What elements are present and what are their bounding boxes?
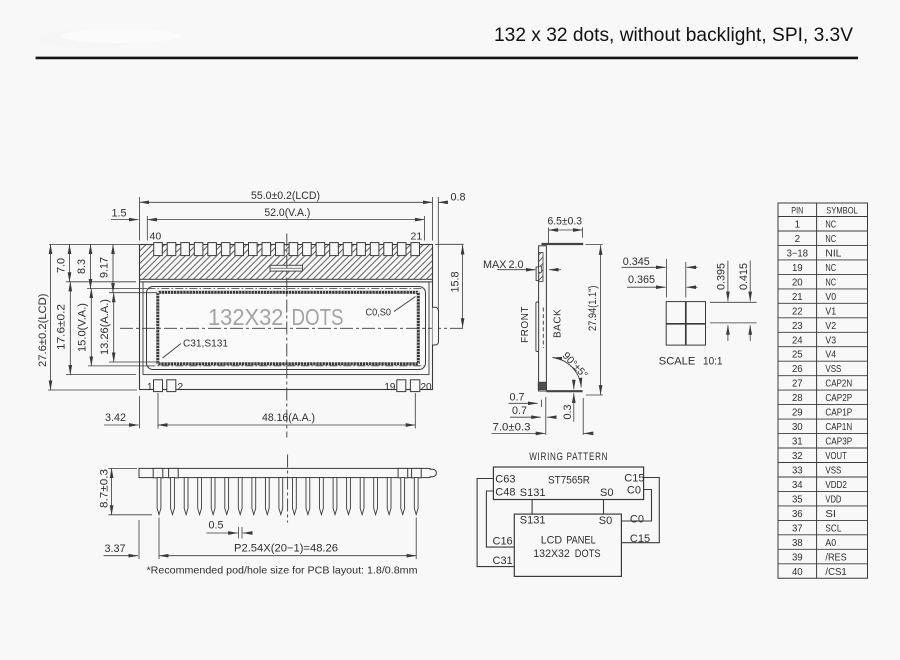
svg-text:1: 1 bbox=[147, 382, 153, 393]
svg-text:39: 39 bbox=[792, 552, 803, 563]
svg-text:8.3: 8.3 bbox=[76, 259, 88, 274]
svg-text:8.7±0.3: 8.7±0.3 bbox=[99, 469, 111, 508]
svg-text:19: 19 bbox=[384, 382, 396, 393]
svg-text:38: 38 bbox=[792, 538, 803, 549]
svg-text:C16: C16 bbox=[493, 536, 513, 548]
svg-text:17.6±0.2: 17.6±0.2 bbox=[56, 304, 68, 350]
svg-text:27: 27 bbox=[792, 379, 803, 390]
svg-text:3.42: 3.42 bbox=[105, 412, 126, 424]
svg-text:/CS1: /CS1 bbox=[825, 567, 846, 578]
svg-text:CAP2P: CAP2P bbox=[825, 393, 852, 404]
svg-text:0.395: 0.395 bbox=[716, 263, 728, 290]
svg-text:V4: V4 bbox=[825, 350, 836, 361]
svg-text:25: 25 bbox=[792, 350, 803, 361]
svg-text:132 x 32 dots, without backlig: 132 x 32 dots, without backlight, SPI, 3… bbox=[494, 24, 853, 46]
svg-text:2: 2 bbox=[178, 382, 184, 393]
svg-text:LCD: LCD bbox=[541, 535, 563, 547]
svg-text:SYMBOL: SYMBOL bbox=[826, 206, 858, 217]
svg-text:*Recommended pod/hole size for: *Recommended pod/hole size for PCB layou… bbox=[147, 566, 418, 577]
svg-text:30: 30 bbox=[792, 422, 803, 433]
svg-text:24: 24 bbox=[792, 335, 803, 346]
svg-text:55.0±0.2(LCD): 55.0±0.2(LCD) bbox=[251, 190, 320, 202]
svg-text:0.3: 0.3 bbox=[562, 404, 574, 419]
svg-text:27.94(1.1"): 27.94(1.1") bbox=[587, 286, 599, 332]
svg-text:40: 40 bbox=[792, 567, 803, 578]
svg-text:3−18: 3−18 bbox=[787, 248, 809, 259]
svg-text:15.8: 15.8 bbox=[450, 271, 462, 292]
svg-text:S131: S131 bbox=[520, 487, 546, 499]
svg-text:PANEL: PANEL bbox=[566, 535, 596, 547]
svg-text:26: 26 bbox=[792, 364, 803, 375]
svg-text:DOTS: DOTS bbox=[292, 304, 344, 330]
svg-text:CAP1P: CAP1P bbox=[825, 408, 852, 419]
svg-text:A0: A0 bbox=[825, 538, 836, 549]
svg-text:C63: C63 bbox=[495, 474, 515, 486]
svg-text:13.26(A.A.): 13.26(A.A.) bbox=[99, 299, 111, 355]
svg-text:10:1: 10:1 bbox=[703, 356, 723, 368]
svg-text:6.5±0.3: 6.5±0.3 bbox=[548, 216, 583, 228]
svg-text:31: 31 bbox=[792, 437, 803, 448]
svg-text:132X32: 132X32 bbox=[533, 548, 570, 560]
svg-text:1: 1 bbox=[795, 220, 800, 231]
svg-text:C15: C15 bbox=[624, 472, 644, 484]
svg-text:0.8: 0.8 bbox=[451, 192, 466, 204]
svg-text:V3: V3 bbox=[825, 335, 836, 346]
svg-text:21: 21 bbox=[792, 292, 803, 303]
svg-text:33: 33 bbox=[792, 466, 803, 477]
svg-text:S0: S0 bbox=[600, 487, 613, 499]
svg-text:S131: S131 bbox=[520, 515, 546, 527]
svg-text:CAP2N: CAP2N bbox=[825, 379, 852, 390]
svg-text:NIL: NIL bbox=[825, 248, 842, 259]
svg-text:MAX: MAX bbox=[483, 259, 506, 271]
svg-text:27.6±0.2(LCD): 27.6±0.2(LCD) bbox=[37, 294, 49, 368]
svg-text:NC: NC bbox=[825, 234, 836, 245]
svg-text:C15: C15 bbox=[630, 533, 650, 545]
svg-text:40: 40 bbox=[150, 231, 162, 243]
svg-text:V1: V1 bbox=[825, 306, 836, 317]
svg-text:20: 20 bbox=[792, 277, 803, 288]
svg-text:C31,S131: C31,S131 bbox=[183, 339, 228, 350]
svg-text:23: 23 bbox=[792, 321, 803, 332]
svg-text:C0,S0: C0,S0 bbox=[366, 308, 392, 319]
svg-text:SCL: SCL bbox=[825, 523, 841, 534]
svg-text:0.7: 0.7 bbox=[512, 405, 527, 417]
svg-text:37: 37 bbox=[792, 523, 803, 534]
svg-text:7.0±0.3: 7.0±0.3 bbox=[493, 422, 531, 434]
svg-text:132X32: 132X32 bbox=[208, 304, 284, 330]
svg-text:52.0(V.A.): 52.0(V.A.) bbox=[264, 207, 310, 219]
svg-text:2: 2 bbox=[795, 234, 800, 245]
svg-text:29: 29 bbox=[792, 408, 803, 419]
svg-text:9.17: 9.17 bbox=[99, 257, 111, 278]
svg-text:1.5: 1.5 bbox=[112, 208, 127, 220]
svg-text:NC: NC bbox=[825, 277, 836, 288]
svg-text:VSS: VSS bbox=[825, 364, 841, 375]
svg-text:C0: C0 bbox=[627, 485, 641, 497]
svg-text:NC: NC bbox=[825, 220, 836, 231]
svg-text:3.37: 3.37 bbox=[105, 543, 126, 555]
svg-text:NC: NC bbox=[825, 263, 836, 274]
svg-text:22: 22 bbox=[792, 306, 803, 317]
svg-text:C48: C48 bbox=[495, 487, 515, 499]
svg-text:21: 21 bbox=[411, 231, 423, 243]
svg-text:15.0(V.A.): 15.0(V.A.) bbox=[77, 303, 89, 352]
svg-text:VSS: VSS bbox=[825, 466, 841, 477]
svg-text:32: 32 bbox=[792, 451, 803, 462]
svg-text:P2.54X(20−1)=48.26: P2.54X(20−1)=48.26 bbox=[234, 543, 338, 555]
svg-text:48.16(A.A.): 48.16(A.A.) bbox=[262, 412, 315, 424]
svg-text:7.0: 7.0 bbox=[56, 258, 68, 273]
svg-text:S0: S0 bbox=[599, 515, 612, 527]
svg-text:20: 20 bbox=[421, 382, 433, 393]
svg-text:35: 35 bbox=[792, 494, 803, 505]
svg-text:0.7: 0.7 bbox=[510, 392, 525, 404]
svg-text:2.0: 2.0 bbox=[509, 259, 524, 271]
svg-text:DOTS: DOTS bbox=[575, 548, 601, 560]
svg-text:0.345: 0.345 bbox=[623, 256, 650, 268]
svg-text:C31: C31 bbox=[493, 555, 513, 567]
svg-text:PIN: PIN bbox=[791, 206, 803, 217]
svg-text:C0: C0 bbox=[630, 514, 644, 526]
svg-text:0.415: 0.415 bbox=[738, 263, 750, 290]
svg-text:/RES: /RES bbox=[825, 552, 847, 563]
svg-text:V0: V0 bbox=[825, 292, 836, 303]
svg-text:BACK: BACK bbox=[552, 309, 563, 338]
svg-text:V2: V2 bbox=[825, 321, 836, 332]
svg-text:CAP1N: CAP1N bbox=[825, 422, 852, 433]
svg-text:ST7565R: ST7565R bbox=[548, 475, 590, 487]
svg-text:VDD2: VDD2 bbox=[825, 480, 846, 491]
svg-text:VOUT: VOUT bbox=[825, 451, 846, 462]
svg-text:28: 28 bbox=[792, 393, 803, 404]
svg-text:0.5: 0.5 bbox=[209, 520, 224, 532]
svg-text:CAP3P: CAP3P bbox=[825, 437, 852, 448]
svg-text:19: 19 bbox=[792, 263, 803, 274]
svg-text:SCALE: SCALE bbox=[659, 356, 696, 368]
svg-text:SI: SI bbox=[825, 509, 836, 520]
svg-text:FRONT: FRONT bbox=[520, 306, 531, 343]
svg-text:34: 34 bbox=[792, 480, 803, 491]
svg-text:VDD: VDD bbox=[825, 494, 841, 505]
svg-text:WIRING PATTERN: WIRING PATTERN bbox=[529, 451, 608, 463]
svg-text:0.365: 0.365 bbox=[628, 274, 655, 286]
svg-text:36: 36 bbox=[792, 509, 803, 520]
